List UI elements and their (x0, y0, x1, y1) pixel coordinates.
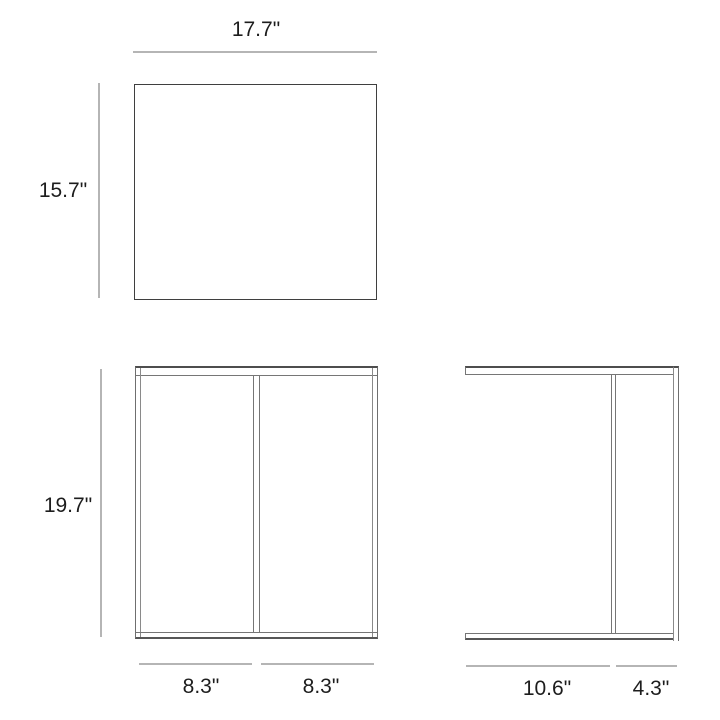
top-view-width-dim-line (133, 51, 377, 53)
side-view-outline (465, 366, 679, 641)
front-base-top-line (136, 632, 377, 633)
front-view-height-label: 19.7" (18, 493, 118, 519)
top-view-depth-label: 15.7" (13, 178, 113, 204)
side-depth-back-label: 4.3" (601, 676, 701, 702)
side-depth-back-dim-line (616, 665, 677, 667)
side-depth-open-dim-line (466, 665, 610, 667)
side-tabletop-slab (465, 366, 679, 375)
front-span-right-dim-line (261, 663, 374, 665)
side-right-leg (673, 366, 679, 641)
top-view-outline (134, 84, 377, 300)
front-middle-divider (253, 376, 260, 633)
top-view-width-label: 17.7" (206, 17, 306, 43)
side-base-slab (465, 633, 679, 640)
side-depth-open-label: 10.6" (497, 676, 597, 702)
front-left-leg-inner-line (140, 368, 141, 637)
front-span-right-label: 8.3" (271, 674, 371, 700)
front-span-left-label: 8.3" (151, 674, 251, 700)
front-span-left-dim-line (139, 663, 252, 665)
dimension-diagram: 17.7" 15.7" 19.7" 8.3" 8.3" 10.6" 4.3" (0, 0, 720, 720)
front-view-outline (135, 366, 378, 639)
front-right-leg-inner-line (372, 368, 373, 637)
side-inner-leg (611, 375, 616, 633)
